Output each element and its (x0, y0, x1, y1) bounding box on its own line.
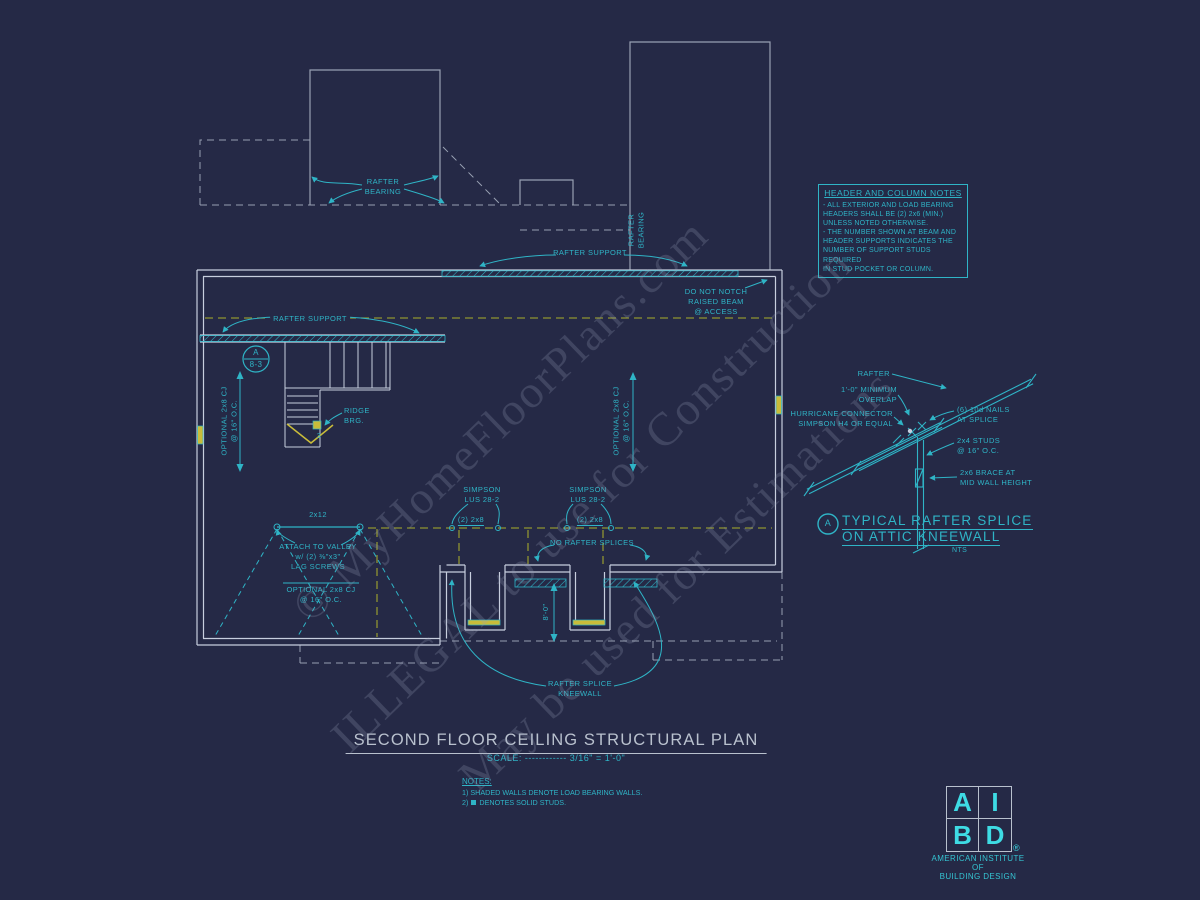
detail-studs-line2: @ 16" O.C. (957, 446, 1000, 456)
simpson-right-label: SIMPSON LUS 28-2 (569, 485, 606, 505)
no-rafter-splices-label: NO RAFTER SPLICES (550, 538, 634, 548)
detail-overlap-line2: OVERLAP (841, 395, 897, 405)
rafter-bearing-top-label: RAFTER BEARING (365, 177, 402, 197)
detail-nails-label: (6) 10d NAILS AT SPLICE (957, 405, 1010, 425)
optional-cj-center-line1: OPTIONAL 2x8 CJ (611, 386, 621, 455)
optional-cj-bottom-line1: OPTIONAL 2x8 CJ (286, 585, 355, 595)
aibd-letter-b: B (947, 819, 979, 851)
aibd-org-line1: AMERICAN INSTITUTE (932, 854, 1025, 863)
optional-cj-left-line2: @ 16" O.C. (229, 386, 239, 455)
detail-studs-line1: 2x4 STUDS (957, 436, 1000, 446)
blueprint-sheet: RAFTER BEARING RAFTER SUPPORT RAFTER BEA… (0, 0, 1200, 900)
simpson-right-line1: SIMPSON (569, 485, 606, 495)
simpson-left-label: SIMPSON LUS 28-2 (463, 485, 500, 505)
rafter-splice-kneewall-line1: RAFTER SPLICE (548, 679, 612, 689)
registered-trademark-symbol: ® (1013, 843, 1020, 853)
attach-valley-line3: LAG SCREWS (279, 562, 356, 572)
ridge-brg-line2: BRG. (344, 416, 370, 426)
header-notes-line7: IN STUD POCKET OR COLUMN. (823, 265, 963, 274)
ridge-brg-line1: RIDGE (344, 406, 370, 416)
header-notes-line4: - THE NUMBER SHOWN AT BEAM AND (823, 228, 963, 237)
solid-stud-square-icon (471, 800, 476, 805)
rafter-splice-kneewall-line2: KNEEWALL (548, 689, 612, 699)
double-2x8-left-label: (2) 2x8 (458, 515, 484, 525)
rafter-splice-kneewall-label: RAFTER SPLICE KNEEWALL (548, 679, 612, 699)
detail-callout-bubble-letter: A (825, 518, 831, 530)
optional-cj-left-label: OPTIONAL 2x8 CJ @ 16" O.C. (219, 386, 239, 455)
aibd-org-line3: BUILDING DESIGN (932, 872, 1025, 881)
detail-hurricane-line1: HURRICANE CONNECTOR (791, 409, 893, 419)
detail-scale-nts: NTS (952, 546, 967, 555)
detail-callout-sheet: 8-3 (250, 360, 263, 370)
ridge-stud-count: 3 (317, 432, 321, 441)
detail-brace-line1: 2x6 BRACE AT (960, 468, 1032, 478)
header-notes-line2: HEADERS SHALL BE (2) 2x6 (MIN.) (823, 210, 963, 219)
detail-overlap-line1: 1'-0" MINIMUM (841, 385, 897, 395)
aibd-letter-d: D (979, 819, 1011, 851)
notes-title: NOTES: (462, 777, 642, 786)
main-plan-walls (197, 270, 782, 645)
simpson-left-line2: LUS 28-2 (463, 495, 500, 505)
ridge-brg-label: RIDGE BRG. (344, 406, 370, 426)
stairs (285, 342, 390, 447)
aibd-letter-i: I (979, 787, 1011, 819)
detail-title-line2-text: ON ATTIC KNEEWALL (842, 529, 1000, 546)
rafter-bearing-top-line2: BEARING (365, 187, 402, 197)
rafter-bearing-side-label: RAFTER BEARING (626, 212, 646, 249)
header-notes-line1: - ALL EXTERIOR AND LOAD BEARING (823, 201, 963, 210)
rafter-bearing-side-line1: RAFTER (626, 212, 636, 249)
header-notes-title: HEADER AND COLUMN NOTES (823, 188, 963, 198)
rafter-bearing-top-line1: RAFTER (365, 177, 402, 187)
aibd-letter-a: A (947, 787, 979, 819)
detail-callout-letter: A (253, 348, 259, 358)
sheet-scale: SCALE: ------------ 3/16" = 1'-0" (487, 753, 625, 763)
detail-hurricane-label: HURRICANE CONNECTOR SIMPSON H4 OR EQUAL (791, 409, 893, 429)
collar-2x12-label: 2x12 (309, 510, 327, 520)
optional-cj-center-label: OPTIONAL 2x8 CJ @ 16" O.C. (611, 386, 631, 455)
header-notes-line5: HEADER SUPPORTS INDICATES THE (823, 237, 963, 246)
detail-rafter-label: RAFTER (858, 369, 890, 379)
optional-cj-bottom-label: OPTIONAL 2x8 CJ @ 16" O.C. (286, 585, 355, 605)
aibd-org-line2: OF (932, 863, 1025, 872)
detail-overlap-label: 1'-0" MINIMUM OVERLAP (841, 385, 897, 405)
header-notes-line6: NUMBER OF SUPPORT STUDS REQUIRED (823, 246, 963, 264)
notes-line2-text: DENOTES SOLID STUDS. (479, 798, 566, 807)
double-2x8-right-label: (2) 2x8 (577, 515, 603, 525)
upper-roof-structures (310, 42, 770, 270)
notes-line1: 1) SHADED WALLS DENOTE LOAD BEARING WALL… (462, 788, 642, 798)
notes-line2-prefix: 2) (462, 798, 468, 807)
double-2x8-right-text: (2) 2x8 (577, 515, 603, 526)
do-not-notch-line2: RAISED BEAM (685, 297, 748, 307)
optional-cj-left-line1: OPTIONAL 2x8 CJ (219, 386, 229, 455)
aibd-logo: A I B D (946, 786, 1012, 852)
header-column-notes-box: HEADER AND COLUMN NOTES - ALL EXTERIOR A… (818, 184, 968, 278)
do-not-notch-line1: DO NOT NOTCH (685, 287, 748, 297)
detail-nails-line1: (6) 10d NAILS (957, 405, 1010, 415)
optional-cj-bottom-line2: @ 16" O.C. (286, 595, 355, 605)
kneewall-height-dim: 8'-0" (541, 604, 551, 621)
detail-title-line1-text: TYPICAL RAFTER SPLICE (842, 513, 1033, 530)
do-not-notch-line3: @ ACCESS (685, 307, 748, 317)
do-not-notch-label: DO NOT NOTCH RAISED BEAM @ ACCESS (685, 287, 748, 316)
detail-studs-label: 2x4 STUDS @ 16" O.C. (957, 436, 1000, 456)
notes-line2: 2)DENOTES SOLID STUDS. (462, 798, 642, 808)
detail-title-line2: ON ATTIC KNEEWALL (842, 529, 1000, 546)
double-2x8-left-text: (2) 2x8 (458, 515, 484, 526)
detail-brace-line2: MID WALL HEIGHT (960, 478, 1032, 488)
sheet-title: SECOND FLOOR CEILING STRUCTURAL PLAN (346, 731, 767, 754)
detail-brace-label: 2x6 BRACE AT MID WALL HEIGHT (960, 468, 1032, 488)
rafter-support-top-label: RAFTER SUPPORT (553, 248, 627, 258)
plan-linework (0, 0, 1200, 900)
detail-title-line1: TYPICAL RAFTER SPLICE (842, 513, 1033, 530)
simpson-left-line1: SIMPSON (463, 485, 500, 495)
detail-hurricane-line2: SIMPSON H4 OR EQUAL (791, 419, 893, 429)
detail-nails-line2: AT SPLICE (957, 415, 1010, 425)
header-notes-line3: UNLESS NOTED OTHERWISE. (823, 219, 963, 228)
attach-valley-line1: ATTACH TO VALLEY (279, 542, 356, 552)
aibd-org-name: AMERICAN INSTITUTE OF BUILDING DESIGN (932, 854, 1025, 882)
optional-cj-center-line2: @ 16" O.C. (621, 386, 631, 455)
attach-valley-label: ATTACH TO VALLEY w/ (2) ⅜"x3" LAG SCREWS (279, 542, 356, 571)
rafter-bearing-side-line2: BEARING (636, 212, 646, 249)
attach-valley-line2: w/ (2) ⅜"x3" (279, 552, 356, 562)
simpson-right-line2: LUS 28-2 (569, 495, 606, 505)
rafter-support-left-label: RAFTER SUPPORT (270, 314, 350, 324)
general-notes: NOTES: 1) SHADED WALLS DENOTE LOAD BEARI… (462, 777, 642, 809)
